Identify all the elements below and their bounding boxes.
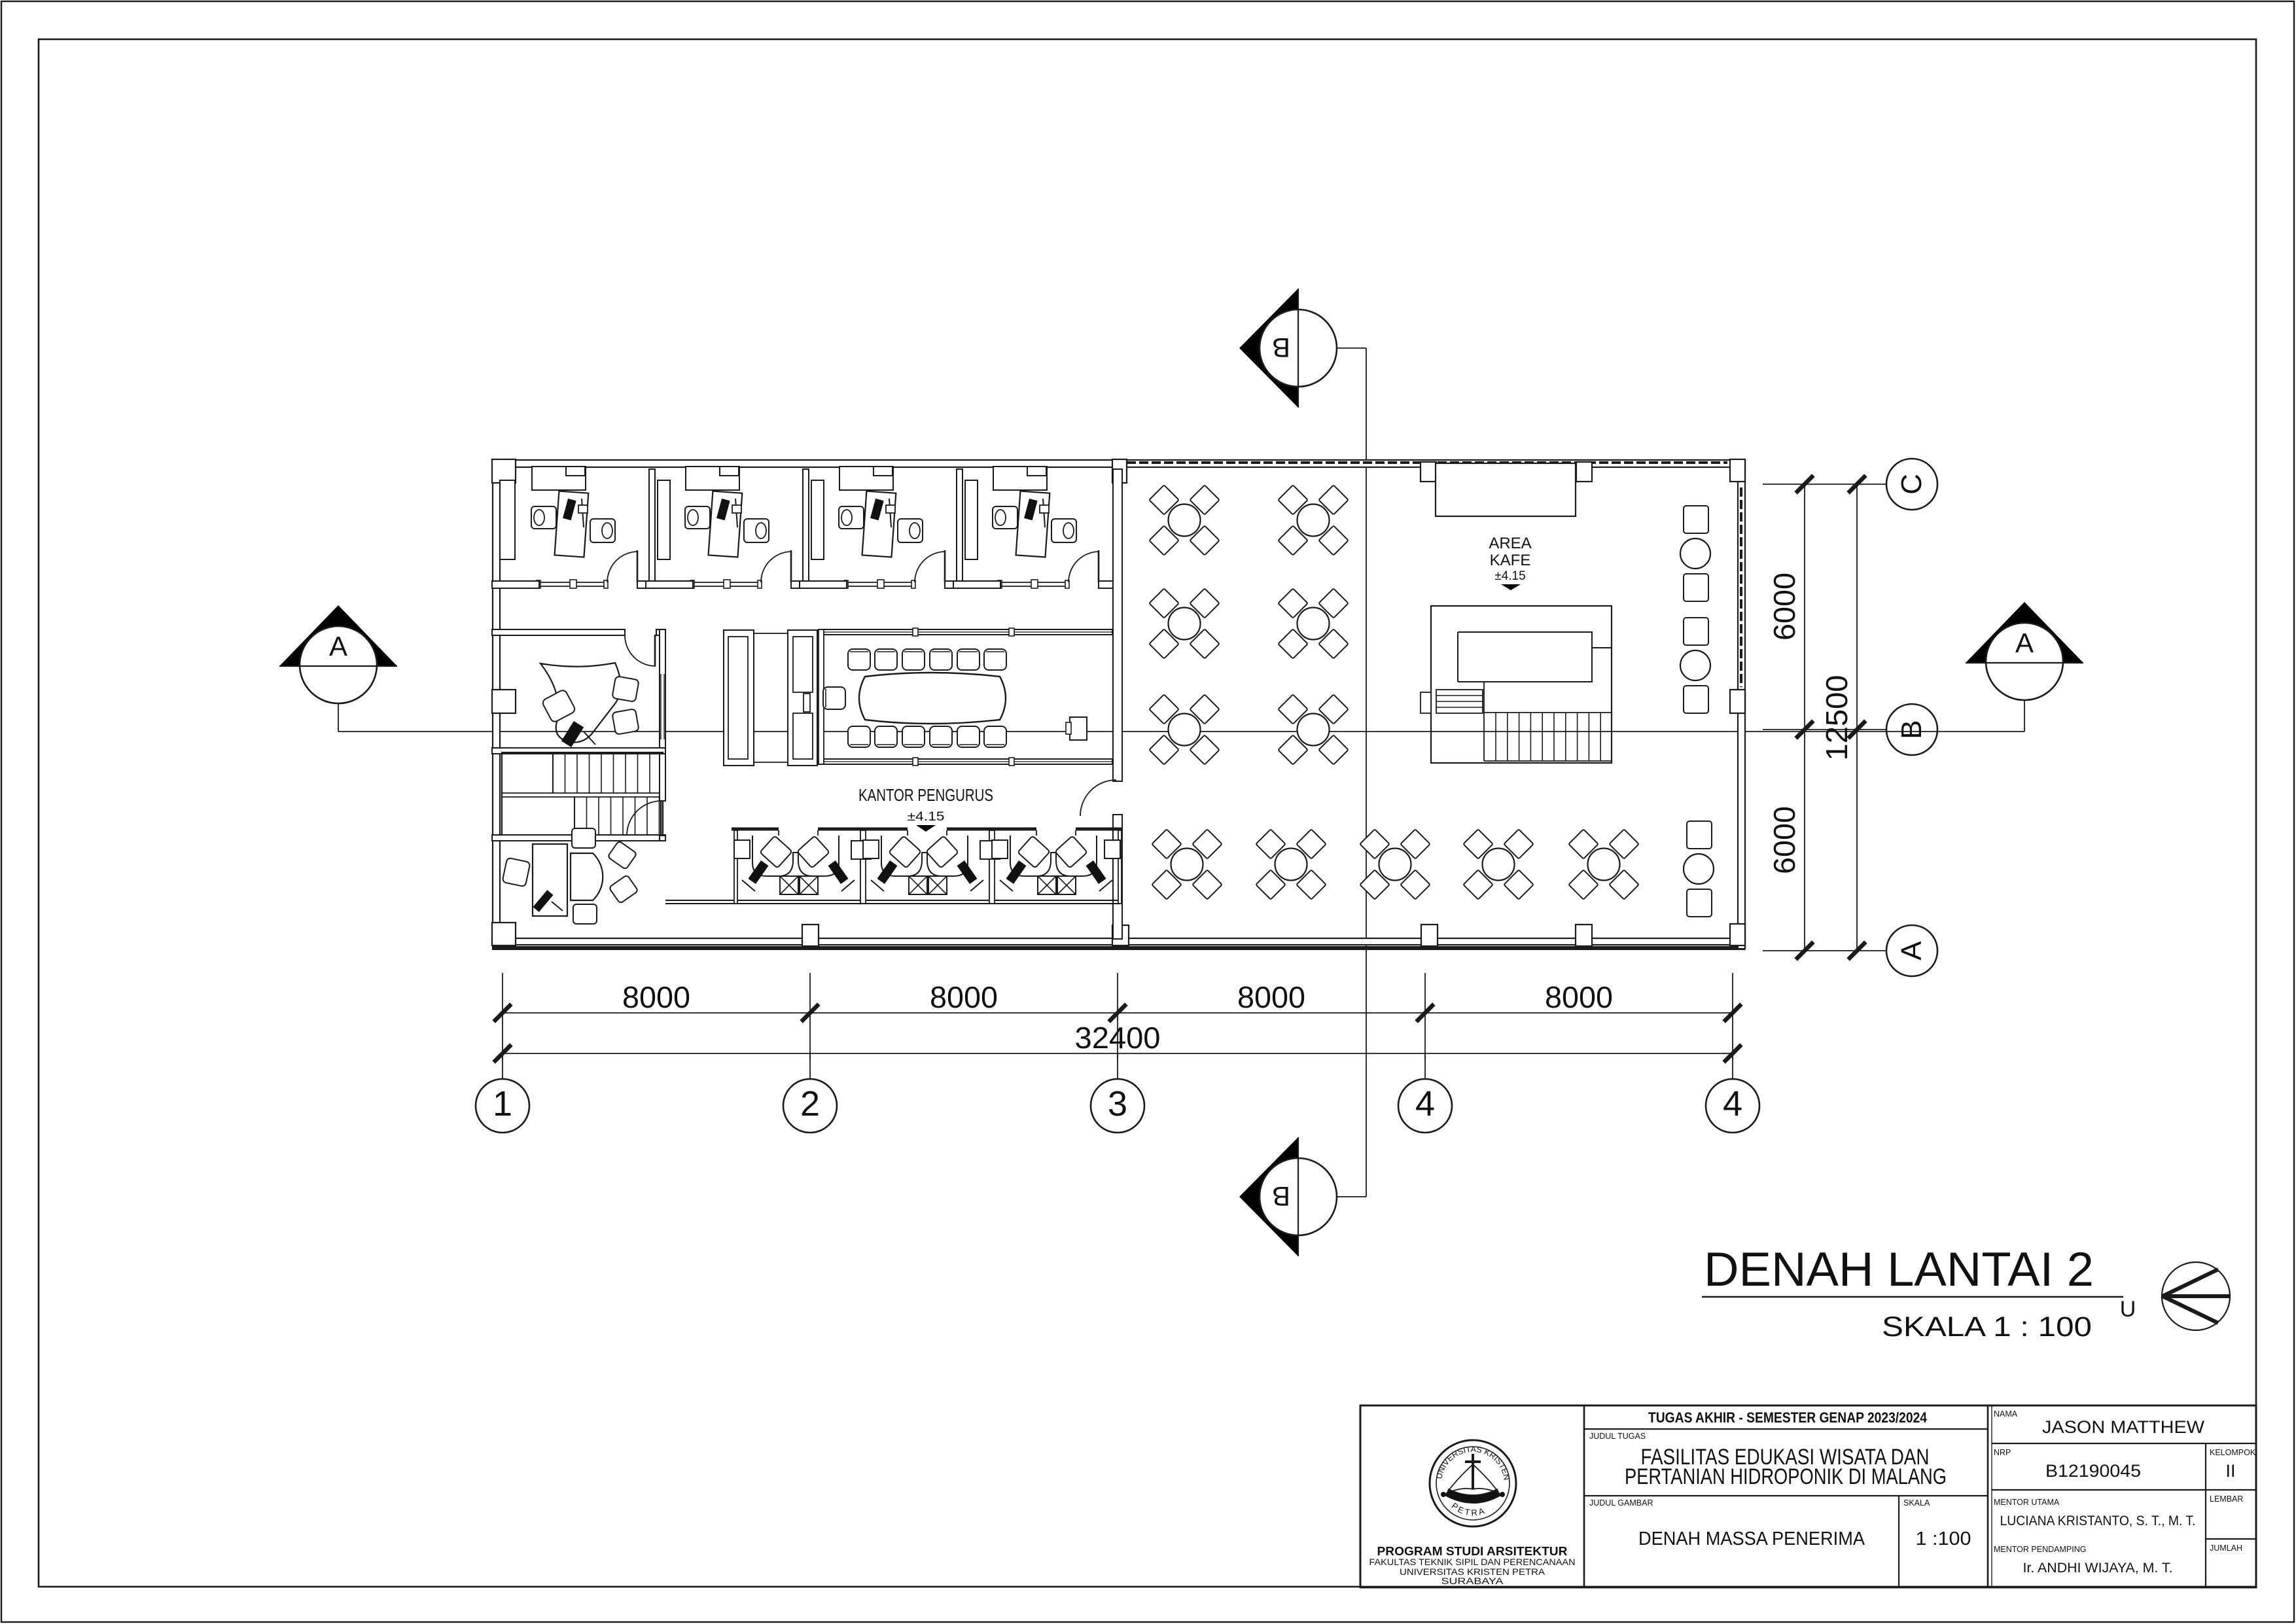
svg-text:±4.15: ±4.15 [1494,569,1525,583]
svg-text:TUGAS AKHIR - SEMESTER GENAP 2: TUGAS AKHIR - SEMESTER GENAP 2023/2024 [1648,1409,1928,1426]
svg-text:B: B [1896,720,1928,739]
svg-text:NAMA: NAMA [1994,1409,2018,1419]
svg-text:C: C [1896,474,1928,495]
svg-text:PERTANIAN HIDROPONIK DI MALANG: PERTANIAN HIDROPONIK DI MALANG [1625,1464,1947,1489]
svg-text:SKALA: SKALA [1903,1498,1930,1508]
svg-text:12500: 12500 [1820,675,1854,761]
svg-text:1: 1 [493,1084,512,1123]
svg-text:PROGRAM STUDI ARSITEKTUR: PROGRAM STUDI ARSITEKTUR [1377,1544,1568,1558]
svg-text:A: A [329,631,347,662]
svg-text:32400: 32400 [1075,1021,1161,1055]
svg-text:KANTOR PENGURUS: KANTOR PENGURUS [858,785,993,805]
svg-text:AREA: AREA [1489,535,1531,552]
svg-text:KELOMPOK: KELOMPOK [2210,1448,2256,1457]
svg-text:8000: 8000 [622,980,690,1014]
svg-text:8000: 8000 [930,980,998,1014]
svg-text:8000: 8000 [1237,980,1305,1014]
svg-text:JUMLAH: JUMLAH [2210,1544,2242,1553]
svg-text:LUCIANA KRISTANTO, S. T., M. T: LUCIANA KRISTANTO, S. T., M. T. [2000,1513,2196,1528]
svg-text:SKALA 1 : 100: SKALA 1 : 100 [1882,1311,2092,1343]
svg-text:8000: 8000 [1545,980,1613,1014]
svg-text:A: A [1896,941,1928,961]
svg-text:II: II [2225,1461,2235,1481]
svg-text:4: 4 [1723,1084,1742,1123]
svg-text:MENTOR UTAMA: MENTOR UTAMA [1994,1498,2060,1507]
svg-text:6000: 6000 [1767,573,1801,641]
svg-text:MENTOR PENDAMPING: MENTOR PENDAMPING [1994,1545,2086,1554]
svg-text:KAFE: KAFE [1490,552,1531,569]
svg-text:B12190045: B12190045 [2045,1461,2141,1481]
svg-text:FAKULTAS TEKNIK SIPIL DAN PERE: FAKULTAS TEKNIK SIPIL DAN PERENCANAAN [1369,1557,1576,1567]
svg-text:A: A [2015,627,2034,658]
svg-text:SURABAYA: SURABAYA [1441,1576,1504,1586]
svg-text:B: B [1272,1181,1290,1212]
svg-text:LEMBAR: LEMBAR [2210,1494,2243,1504]
svg-text:1 :100: 1 :100 [1916,1528,1971,1549]
svg-text:JUDUL TUGAS: JUDUL TUGAS [1589,1432,1646,1441]
svg-text:DENAH MASSA PENERIMA: DENAH MASSA PENERIMA [1638,1528,1865,1549]
svg-text:±4.15: ±4.15 [908,810,945,824]
svg-text:DENAH LANTAI 2: DENAH LANTAI 2 [1704,1243,2094,1296]
svg-text:2: 2 [800,1084,820,1123]
svg-text:Ir. ANDHI WIJAYA, M. T.: Ir. ANDHI WIJAYA, M. T. [2023,1560,2173,1576]
svg-text:6000: 6000 [1767,806,1801,874]
svg-text:NRP: NRP [1994,1448,2011,1457]
svg-text:3: 3 [1108,1084,1127,1123]
svg-text:JASON MATTHEW: JASON MATTHEW [2042,1417,2205,1437]
svg-text:B: B [1272,332,1290,363]
svg-text:JUDUL GAMBAR: JUDUL GAMBAR [1589,1498,1653,1508]
svg-text:4: 4 [1415,1084,1435,1123]
svg-text:U: U [2120,1297,2136,1322]
